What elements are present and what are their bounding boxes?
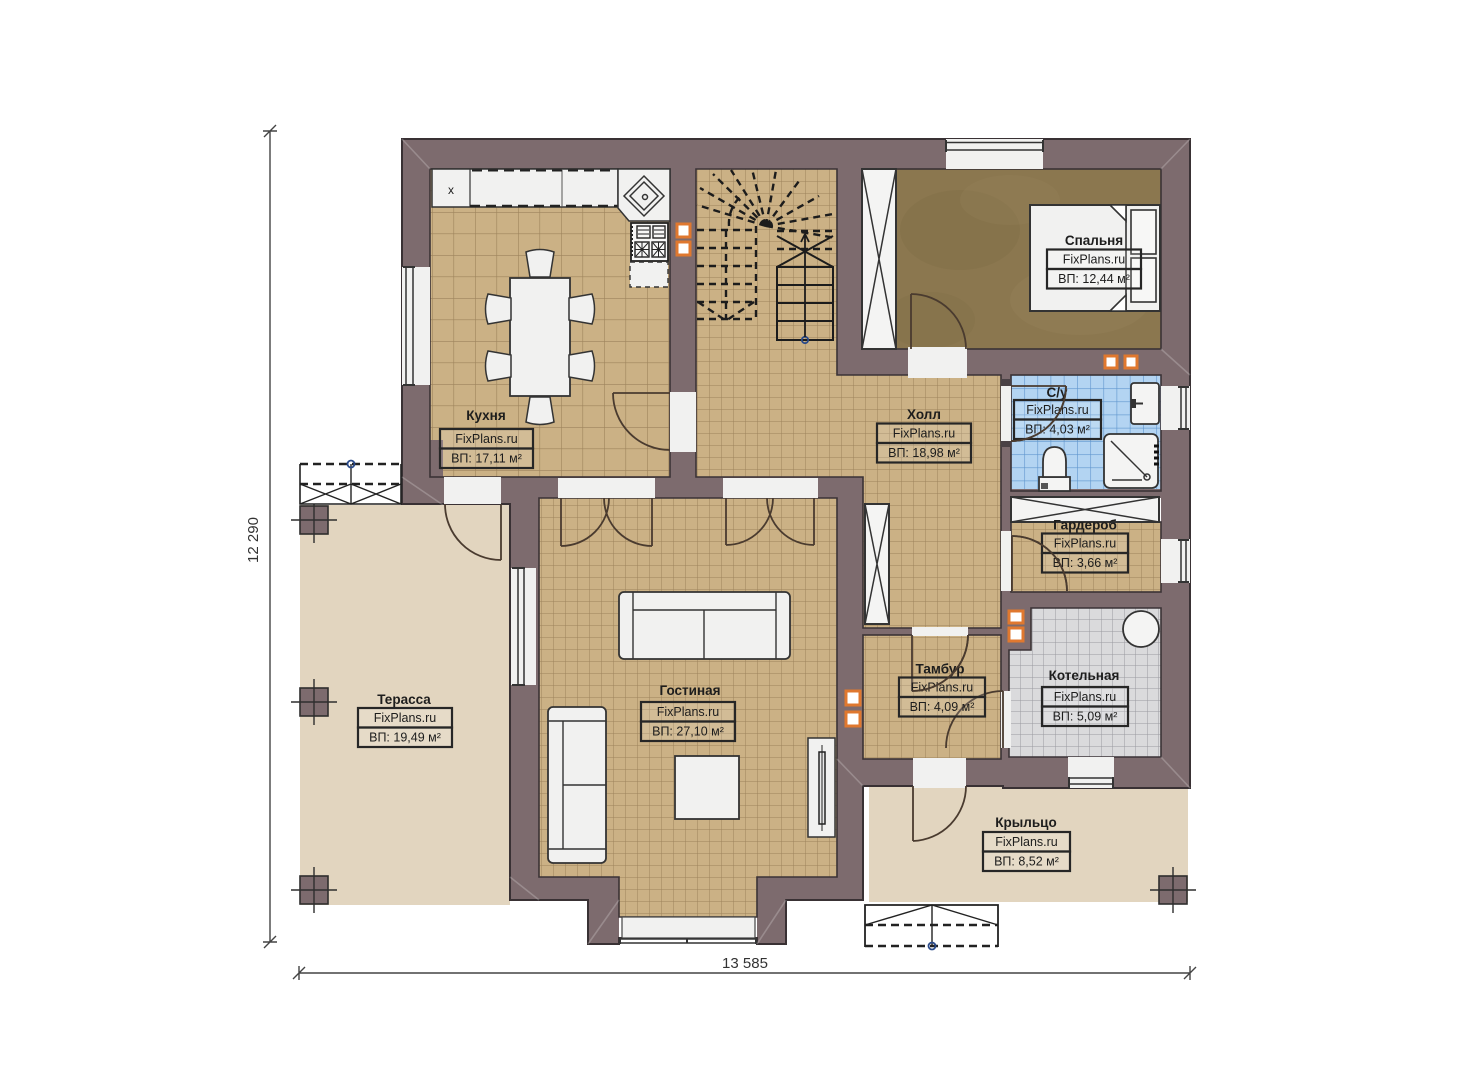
svg-text:ВП: 8,52 м²: ВП: 8,52 м² — [994, 855, 1059, 869]
svg-text:Крыльцо: Крыльцо — [995, 815, 1056, 830]
svg-text:Гардероб: Гардероб — [1053, 518, 1117, 533]
svg-text:Холл: Холл — [907, 407, 941, 422]
svg-text:Спальня: Спальня — [1065, 233, 1123, 248]
svg-text:13 585: 13 585 — [722, 955, 768, 972]
svg-text:FixPlans.ru: FixPlans.ru — [1054, 537, 1117, 551]
svg-text:ВП: 19,49 м²: ВП: 19,49 м² — [369, 731, 441, 745]
svg-text:FixPlans.ru: FixPlans.ru — [893, 427, 956, 441]
svg-text:ВП: 27,10 м²: ВП: 27,10 м² — [652, 725, 724, 739]
svg-text:FixPlans.ru: FixPlans.ru — [657, 705, 720, 719]
svg-text:FixPlans.ru: FixPlans.ru — [1054, 690, 1117, 704]
svg-text:ВП: 17,11 м²: ВП: 17,11 м² — [451, 452, 522, 466]
svg-text:ВП: 5,09 м²: ВП: 5,09 м² — [1053, 710, 1118, 724]
svg-text:12 290: 12 290 — [245, 517, 262, 563]
svg-text:Котельная: Котельная — [1049, 668, 1120, 683]
svg-text:FixPlans.ru: FixPlans.ru — [455, 432, 518, 446]
svg-text:x: x — [448, 183, 454, 197]
svg-text:ВП: 4,09 м²: ВП: 4,09 м² — [910, 700, 975, 714]
svg-text:Кухня: Кухня — [466, 408, 505, 423]
svg-text:FixPlans.ru: FixPlans.ru — [1063, 253, 1126, 267]
svg-text:ВП: 12,44 м²: ВП: 12,44 м² — [1058, 272, 1130, 286]
svg-text:FixPlans.ru: FixPlans.ru — [374, 711, 437, 725]
svg-text:ВП: 18,98 м²: ВП: 18,98 м² — [888, 446, 960, 460]
svg-text:FixPlans.ru: FixPlans.ru — [995, 835, 1058, 849]
svg-text:ВП: 4,03 м²: ВП: 4,03 м² — [1025, 423, 1090, 437]
svg-text:Гостиная: Гостиная — [659, 683, 720, 698]
svg-text:Терасса: Терасса — [377, 692, 431, 707]
